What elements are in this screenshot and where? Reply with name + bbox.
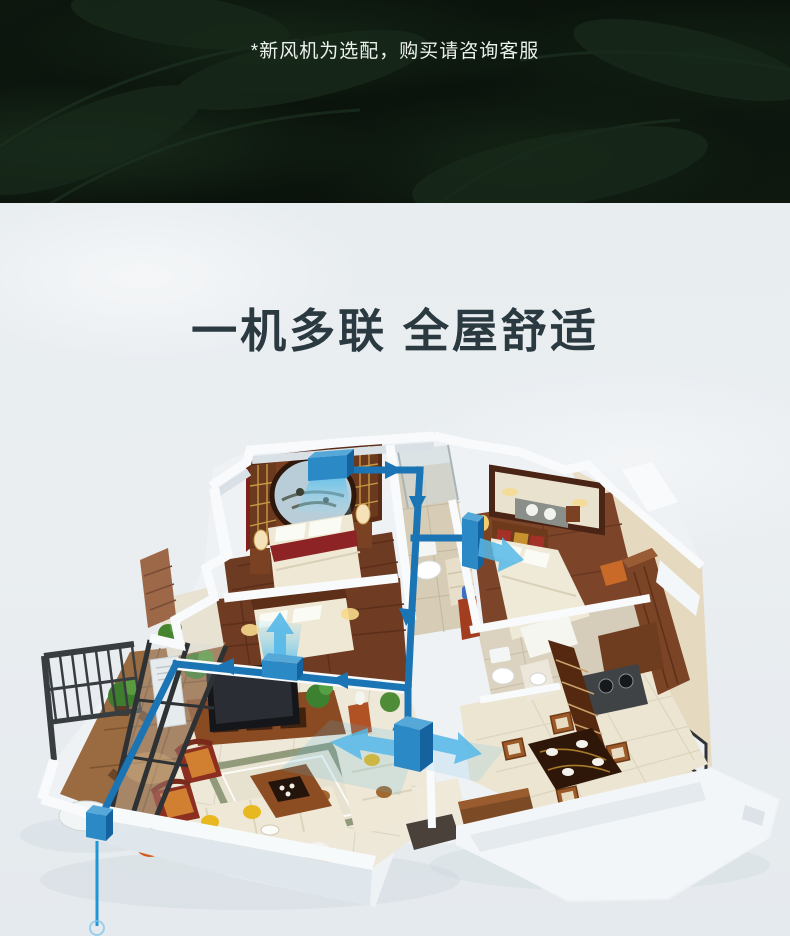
hero-section: 一机多联 全屋舒适 bbox=[0, 203, 790, 936]
page-title: 一机多联 全屋舒适 bbox=[0, 295, 790, 361]
fern-background bbox=[0, 0, 790, 203]
promo-page: *新风机为选配，购买请咨询客服 一机多联 全屋舒适 bbox=[0, 0, 790, 936]
promo-banner: *新风机为选配，购买请咨询客服 bbox=[0, 0, 790, 203]
banner-note: *新风机为选配，购买请咨询客服 bbox=[0, 36, 790, 63]
